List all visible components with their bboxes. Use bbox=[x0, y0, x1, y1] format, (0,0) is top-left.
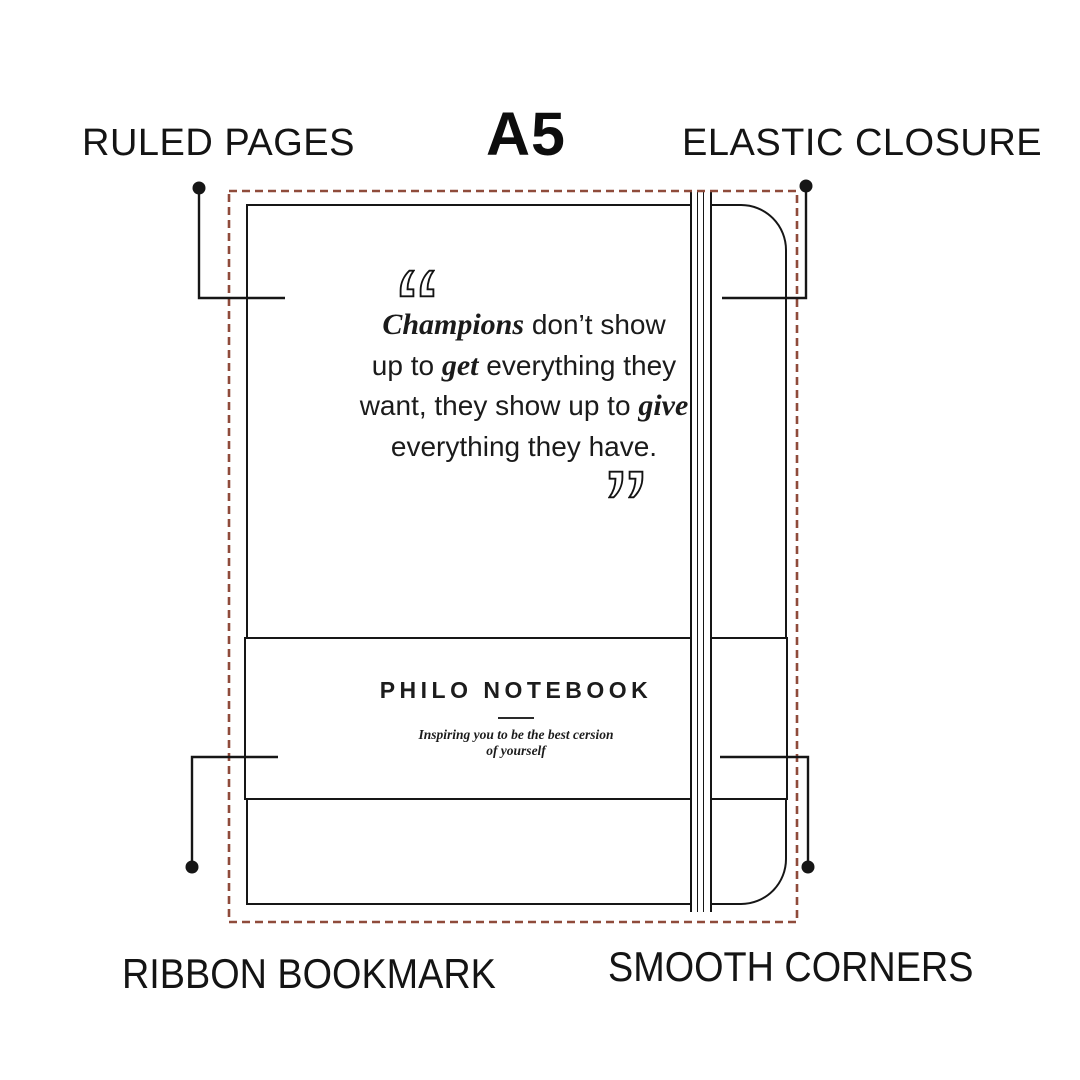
notebook-feature-diagram: RULED PAGES A5 ELASTIC CLOSURE RIBBON BO… bbox=[0, 0, 1080, 1080]
ruled-pages-label: RULED PAGES bbox=[82, 122, 355, 165]
ribbon-bookmark-label: RIBBON BOOKMARK bbox=[122, 950, 496, 998]
quote-line-3: want, they show up to give bbox=[330, 386, 718, 427]
elastic-closure-label: ELASTIC CLOSURE bbox=[682, 122, 1042, 165]
brand-divider bbox=[498, 717, 534, 719]
quote-line-2: up to get everything they bbox=[330, 346, 718, 387]
quote-word-give: give bbox=[638, 389, 688, 422]
elastic-band-inner-line bbox=[703, 192, 705, 912]
quote-word-get: get bbox=[442, 349, 479, 382]
brand-tagline: Inspiring you to be the best cersion of … bbox=[418, 727, 613, 759]
quote-word-champions: Champions bbox=[382, 308, 524, 341]
quote-line-4-text: everything they have. bbox=[391, 431, 657, 462]
close-quote-icon bbox=[608, 470, 644, 499]
quote-line-1: Champions don’t show bbox=[330, 305, 718, 346]
open-quote-icon bbox=[399, 269, 435, 298]
quote-line-4: everything they have. bbox=[330, 427, 718, 468]
cover-quote: Champions don’t show up to get everythin… bbox=[330, 305, 718, 467]
smooth-corners-label: SMOOTH CORNERS bbox=[608, 943, 973, 991]
size-label: A5 bbox=[486, 99, 566, 169]
elastic-band-inner-line bbox=[697, 192, 699, 912]
quote-line-2-a: up to bbox=[372, 350, 442, 381]
quote-line-2-b: everything they bbox=[479, 350, 677, 381]
brand-tagline-line-1: Inspiring you to be the best cersion bbox=[418, 727, 613, 743]
quote-line-3-a: want, they show up to bbox=[360, 390, 639, 421]
elastic-band bbox=[690, 192, 712, 912]
quote-line-1-rest: don’t show bbox=[524, 309, 666, 340]
brand-name: PHILO NOTEBOOK bbox=[380, 677, 653, 704]
brand-tagline-line-2: of yourself bbox=[418, 743, 613, 759]
